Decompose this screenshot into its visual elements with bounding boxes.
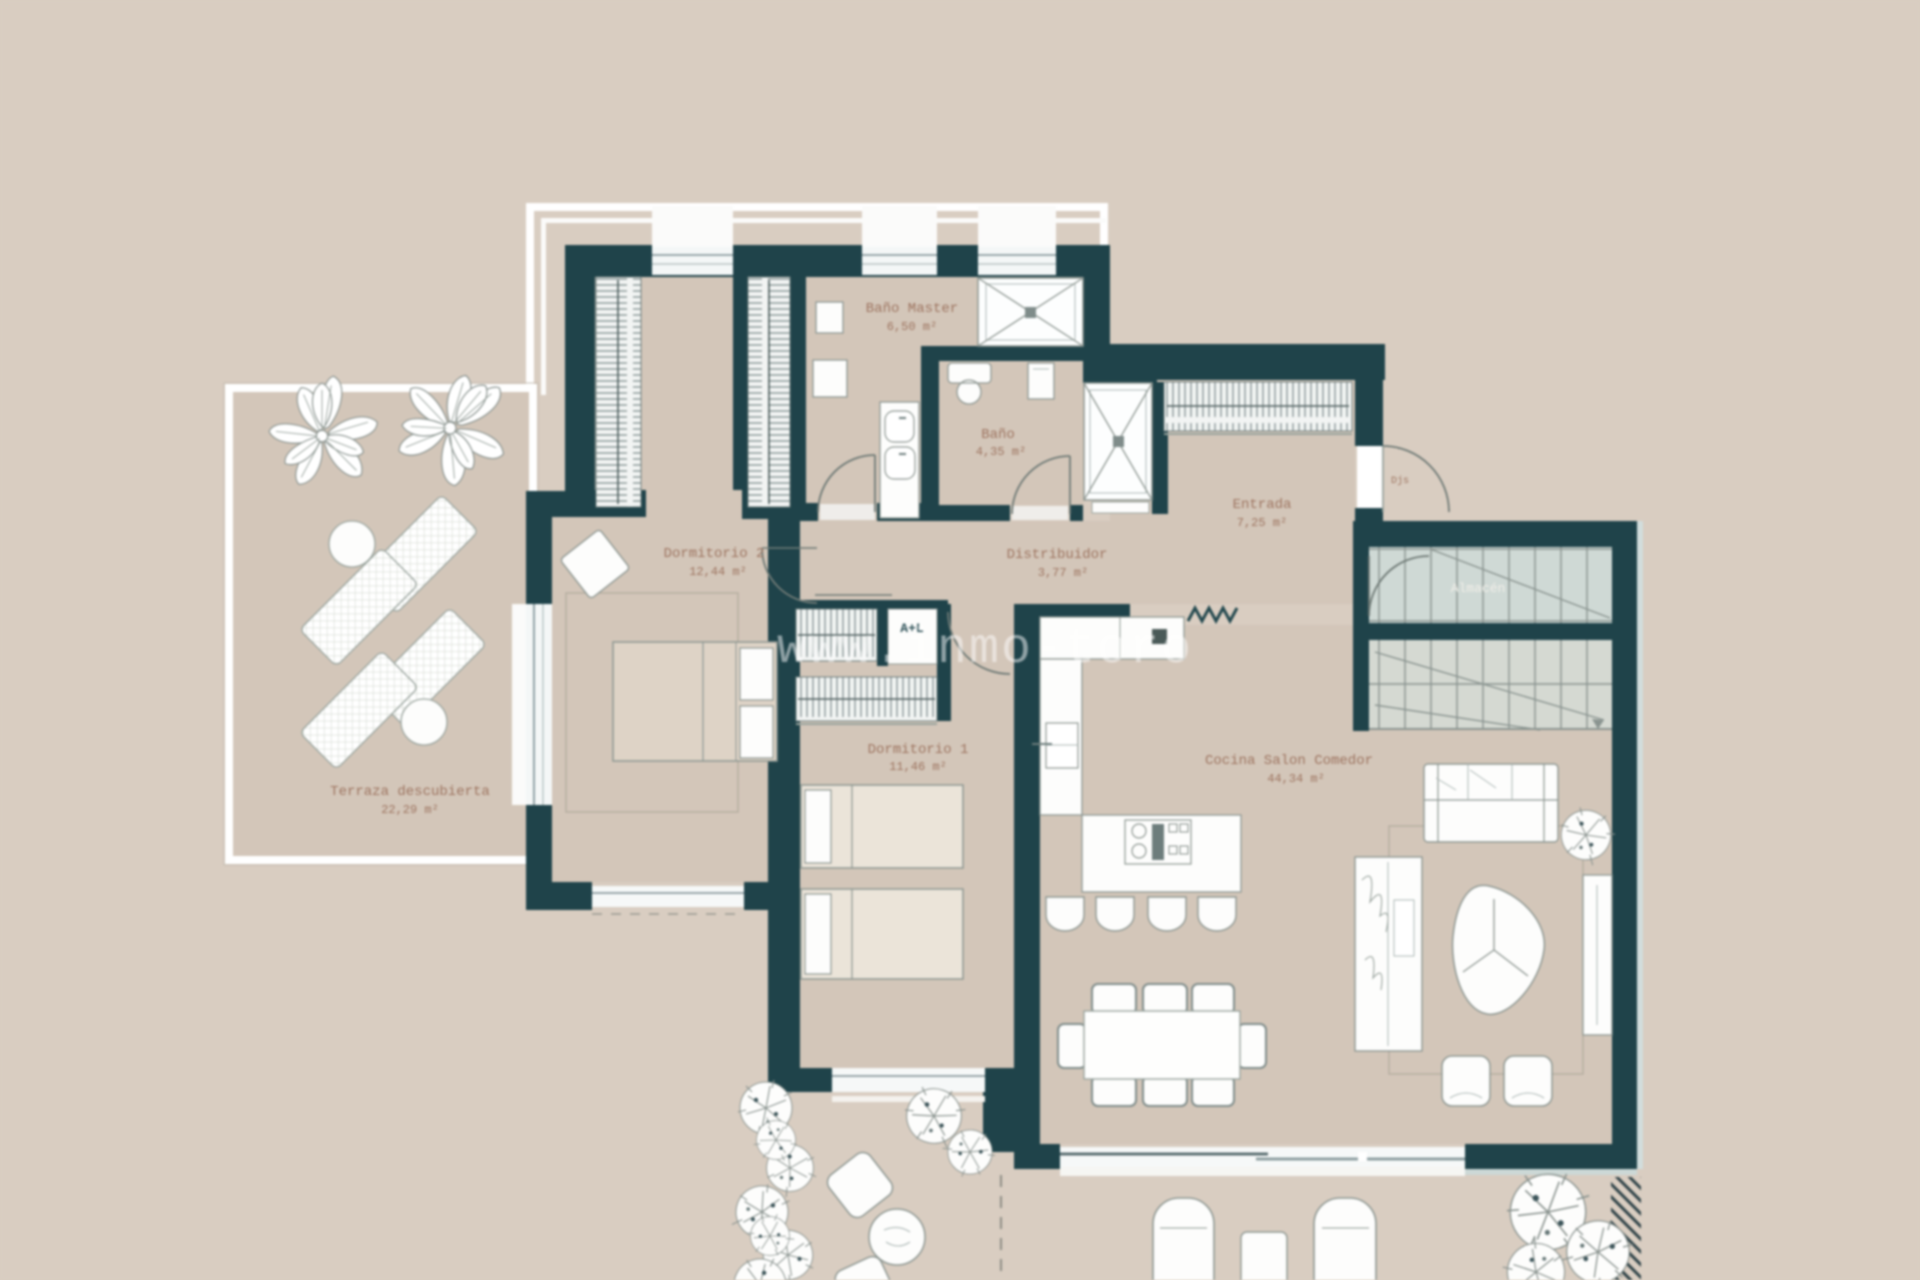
svg-text:Baño: Baño xyxy=(981,427,1015,443)
svg-text:Baño Master: Baño Master xyxy=(866,301,958,317)
svg-text:7,25 m²: 7,25 m² xyxy=(1237,516,1287,530)
svg-text:www.inmo-toro: www.inmo-toro xyxy=(777,621,1193,678)
svg-text:6,50 m²: 6,50 m² xyxy=(887,320,937,334)
svg-text:Entrada: Entrada xyxy=(1233,497,1292,513)
svg-text:11,46 m²: 11,46 m² xyxy=(889,760,947,774)
svg-text:Dormitorio 1: Dormitorio 1 xyxy=(868,742,969,758)
svg-text:Terraza descubierta: Terraza descubierta xyxy=(330,784,490,800)
svg-text:3,77 m²: 3,77 m² xyxy=(1038,566,1088,580)
svg-text:Dormitorio 2: Dormitorio 2 xyxy=(664,546,765,562)
svg-text:12,44 m²: 12,44 m² xyxy=(689,565,747,579)
svg-text:4,35 m²: 4,35 m² xyxy=(976,445,1026,459)
svg-text:44,34 m²: 44,34 m² xyxy=(1267,772,1325,786)
svg-text:Almacén: Almacén xyxy=(1451,581,1506,596)
svg-text:Djs: Djs xyxy=(1391,475,1409,487)
svg-text:Distribuidor: Distribuidor xyxy=(1007,547,1108,563)
svg-text:22,29 m²: 22,29 m² xyxy=(381,803,439,817)
svg-text:Cocina Salon Comedor: Cocina Salon Comedor xyxy=(1205,753,1373,769)
